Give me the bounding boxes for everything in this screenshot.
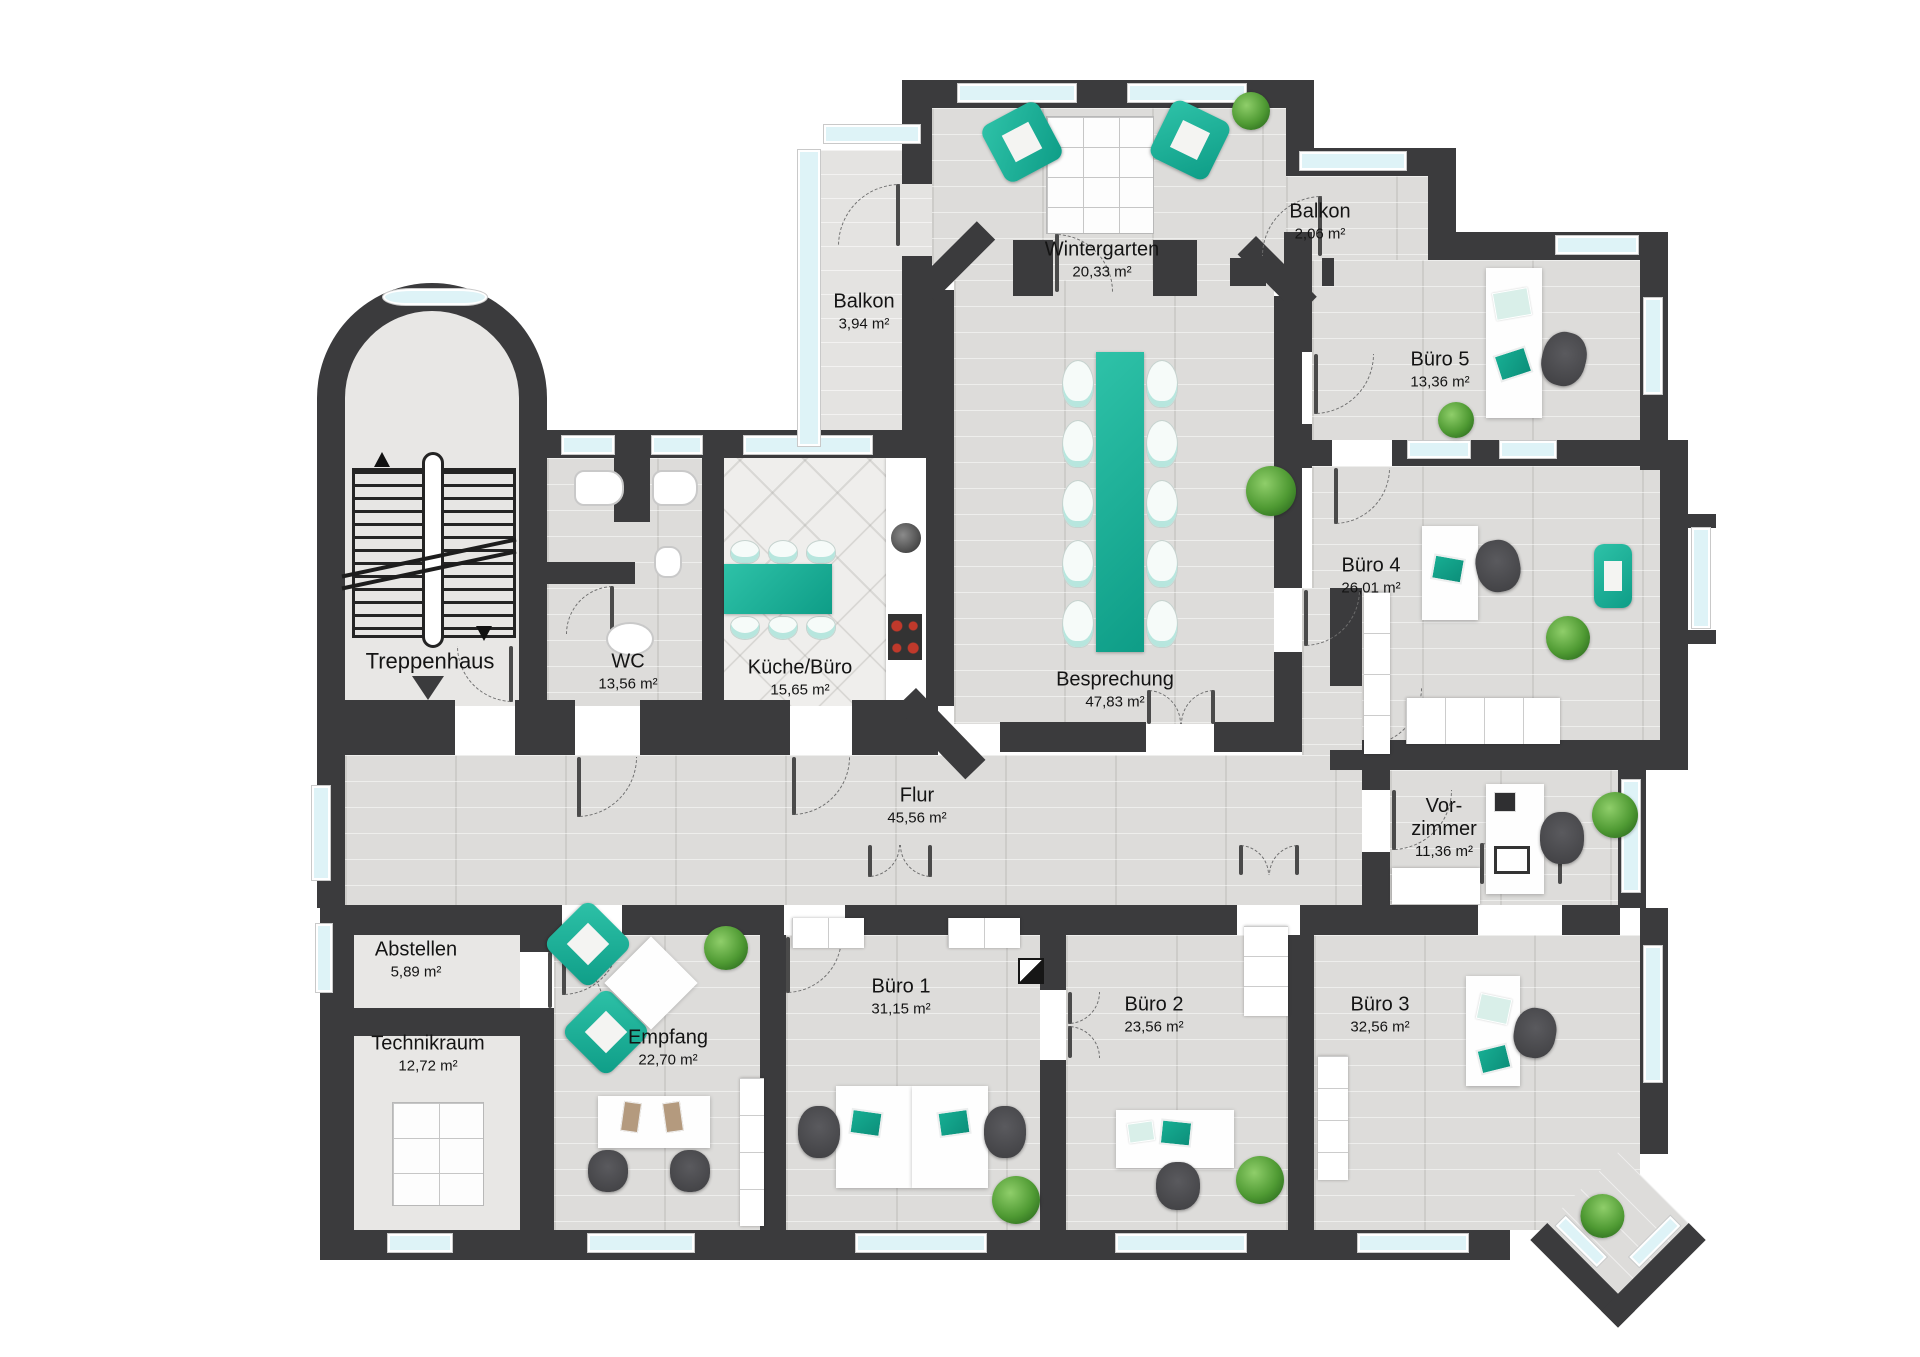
shaft-symbol — [1018, 958, 1044, 984]
flur-floor — [345, 755, 1362, 905]
wall — [1230, 258, 1266, 286]
window — [1500, 441, 1556, 458]
wall — [926, 458, 954, 706]
door — [1068, 1026, 1100, 1058]
wall — [1428, 148, 1456, 260]
room-label-empfang: Empfang 22,70 m² — [628, 1027, 708, 1070]
wall — [702, 458, 724, 706]
wall — [1562, 905, 1620, 935]
room-label-buero4: Büro 4 26,01 m² — [1341, 555, 1400, 598]
room-area: 32,56 m² — [1350, 1019, 1409, 1037]
sideboard — [1392, 868, 1480, 904]
window — [588, 1234, 694, 1252]
window — [383, 289, 487, 305]
room-label-kueche: Küche/Büro 15,65 m² — [748, 657, 853, 700]
room-label-balkon-rechts: Balkon 2,06 m² — [1289, 201, 1350, 244]
storage-shelf — [392, 1102, 484, 1206]
room-name: zimmer — [1411, 818, 1477, 841]
stair-up-arrow — [374, 452, 390, 467]
wall — [622, 905, 784, 935]
door — [868, 845, 900, 877]
window — [312, 786, 330, 880]
room-area: 12,72 m² — [371, 1058, 484, 1076]
room-name: Büro 1 — [871, 976, 930, 999]
sideboard — [740, 1078, 764, 1226]
wall — [520, 1008, 554, 1232]
wall — [1362, 852, 1390, 908]
window — [1128, 84, 1246, 102]
room-area: 13,56 m² — [598, 676, 657, 694]
chair — [1146, 540, 1178, 588]
window — [958, 84, 1076, 102]
table — [598, 1096, 710, 1148]
room-area: 20,33 m² — [1045, 264, 1160, 282]
room-name: Wintergarten — [1045, 239, 1160, 262]
room-name: Balkon — [833, 291, 894, 314]
room-area: 11,36 m² — [1411, 843, 1477, 861]
entrance-arrow — [412, 676, 444, 700]
window — [652, 436, 702, 454]
chair — [1062, 480, 1094, 528]
wall — [1330, 750, 1362, 770]
room-label-buero1: Büro 1 31,15 m² — [871, 976, 930, 1019]
sideboard — [1364, 592, 1390, 754]
chair — [1062, 600, 1094, 648]
room-label-wc: WC 13,56 m² — [598, 651, 657, 694]
window — [1644, 298, 1662, 394]
plant — [1232, 92, 1270, 130]
office-chair — [798, 1106, 840, 1158]
laptop — [936, 1108, 971, 1138]
plant — [1236, 1156, 1284, 1204]
chair — [806, 616, 836, 640]
room-label-vorzimmer: Vor- zimmer 11,36 m² — [1411, 795, 1477, 861]
wall — [1040, 1060, 1066, 1232]
window — [562, 436, 614, 454]
plant — [1592, 792, 1638, 838]
room-name: Besprechung — [1056, 669, 1174, 692]
room-label-balkon-links: Balkon 3,94 m² — [833, 291, 894, 334]
chair — [1146, 600, 1178, 648]
room-area: 5,89 m² — [375, 964, 457, 982]
floor-plan: Treppenhaus WC 13,56 m² Küche/Büro 15,65… — [0, 0, 1920, 1357]
room-name: Büro 4 — [1341, 555, 1400, 578]
armchair-seat — [1169, 119, 1210, 160]
room-name: Büro 2 — [1124, 994, 1183, 1017]
wall — [1362, 770, 1390, 790]
plant — [1438, 402, 1474, 438]
room-area: 15,65 m² — [748, 682, 853, 700]
armchair-seat — [566, 922, 609, 965]
door — [1269, 845, 1299, 875]
door — [577, 757, 637, 817]
window — [856, 1234, 986, 1252]
window — [1358, 1234, 1468, 1252]
armchair — [1594, 544, 1632, 608]
window — [1644, 946, 1662, 1082]
room-area: 26,01 m² — [1341, 580, 1400, 598]
chair — [670, 1150, 710, 1192]
armchair-seat — [1604, 561, 1622, 592]
room-label-flur: Flur 45,56 m² — [887, 785, 946, 828]
laptop — [1159, 1118, 1194, 1147]
chair — [768, 616, 798, 640]
wall — [1688, 514, 1716, 528]
toilet — [574, 470, 624, 506]
room-name: Büro 3 — [1350, 994, 1409, 1017]
room-label-buero3: Büro 3 32,56 m² — [1350, 994, 1409, 1037]
room-area: 2,06 m² — [1289, 226, 1350, 244]
room-name: Technikraum — [371, 1033, 484, 1056]
wall — [1300, 905, 1390, 935]
office-chair — [1540, 812, 1584, 864]
chair — [730, 540, 760, 564]
wall — [317, 420, 345, 710]
tray — [1494, 846, 1530, 874]
window — [1116, 1234, 1246, 1252]
armchair-seat — [584, 1010, 627, 1053]
room-name: Flur — [887, 785, 946, 808]
door — [1334, 468, 1390, 524]
room-area: 45,56 m² — [887, 810, 946, 828]
chair — [1062, 420, 1094, 468]
door — [566, 586, 614, 634]
window — [1629, 1216, 1680, 1267]
door — [900, 845, 932, 877]
conference-table — [1096, 352, 1144, 652]
sideboard — [1406, 698, 1560, 744]
stove — [888, 614, 922, 660]
chair — [1062, 540, 1094, 588]
kitchen-sink — [888, 520, 924, 556]
room-name: Küche/Büro — [748, 657, 853, 680]
door — [1304, 590, 1360, 646]
wall — [902, 256, 932, 452]
room-name: Balkon — [1289, 201, 1350, 224]
armchair-seat — [1001, 121, 1043, 163]
window — [388, 1234, 452, 1252]
paper — [1127, 1120, 1156, 1143]
room-label-besprechung: Besprechung 47,83 m² — [1056, 669, 1174, 712]
plant — [992, 1176, 1040, 1224]
table — [1046, 116, 1154, 234]
wall — [1322, 258, 1334, 286]
wall — [1660, 440, 1688, 770]
room-area: 23,56 m² — [1124, 1019, 1183, 1037]
door — [1181, 690, 1215, 724]
chair — [768, 540, 798, 564]
room-label-buero5: Büro 5 13,36 m² — [1410, 349, 1469, 392]
kitchen-table — [724, 564, 832, 614]
wall — [547, 562, 635, 584]
sideboard — [1318, 1056, 1348, 1180]
chair — [1146, 420, 1178, 468]
laptop — [1430, 553, 1466, 584]
room-area: 22,70 m² — [628, 1052, 708, 1070]
toilet — [652, 470, 698, 506]
window — [1692, 528, 1710, 628]
wall — [640, 700, 790, 755]
wall — [519, 420, 547, 710]
room-name: Abstellen — [375, 939, 457, 962]
door — [1314, 354, 1374, 414]
wall — [1284, 424, 1312, 468]
sideboard — [792, 918, 864, 948]
room-name: Büro 5 — [1410, 349, 1469, 372]
wall — [1688, 630, 1716, 644]
washbasin — [654, 546, 682, 578]
chair — [588, 1150, 628, 1192]
stair-down-arrow — [476, 626, 492, 641]
window — [1300, 152, 1406, 170]
room-label-wintergarten: Wintergarten 20,33 m² — [1045, 239, 1160, 282]
chair — [1146, 480, 1178, 528]
room-area: 3,94 m² — [833, 316, 894, 334]
wall — [1000, 722, 1146, 752]
office-chair — [984, 1106, 1026, 1158]
window — [1408, 441, 1470, 458]
room-name: WC — [598, 651, 657, 674]
room-label-abstellen: Abstellen 5,89 m² — [375, 939, 457, 982]
window — [824, 125, 920, 143]
laptop — [848, 1108, 883, 1138]
stair-handrail — [422, 452, 444, 648]
sideboard — [1244, 926, 1288, 1016]
plant — [1246, 466, 1296, 516]
window — [316, 924, 332, 992]
window — [1556, 236, 1638, 254]
laptop — [1494, 792, 1516, 812]
room-label-buero2: Büro 2 23,56 m² — [1124, 994, 1183, 1037]
room-label-treppenhaus: Treppenhaus — [366, 648, 495, 673]
sideboard — [948, 918, 1020, 948]
room-area: 47,83 m² — [1056, 694, 1174, 712]
wall — [1214, 722, 1302, 752]
wall — [1390, 905, 1478, 935]
door — [1068, 992, 1100, 1024]
room-area: 31,15 m² — [871, 1001, 930, 1019]
wall — [1312, 440, 1332, 466]
office-chair — [1156, 1162, 1200, 1210]
chair — [730, 616, 760, 640]
wall — [515, 700, 575, 755]
wall — [1274, 652, 1302, 724]
wall — [845, 905, 1237, 935]
door — [838, 184, 900, 246]
desk — [912, 1086, 988, 1188]
door — [1239, 845, 1269, 875]
room-name: Empfang — [628, 1027, 708, 1050]
plant — [1546, 616, 1590, 660]
room-area: 13,36 m² — [1410, 374, 1469, 392]
wall — [1153, 240, 1197, 296]
chair — [806, 540, 836, 564]
chair — [1062, 360, 1094, 408]
wall — [1288, 935, 1314, 1232]
room-label-technikraum: Technikraum 12,72 m² — [371, 1033, 484, 1076]
room-name: Treppenhaus — [366, 648, 495, 673]
room-name: Vor- — [1411, 795, 1477, 818]
kitchen-counter — [886, 458, 926, 706]
balcony-glazing — [798, 150, 820, 446]
chair — [1146, 360, 1178, 408]
plant — [704, 926, 748, 970]
door — [792, 757, 850, 815]
